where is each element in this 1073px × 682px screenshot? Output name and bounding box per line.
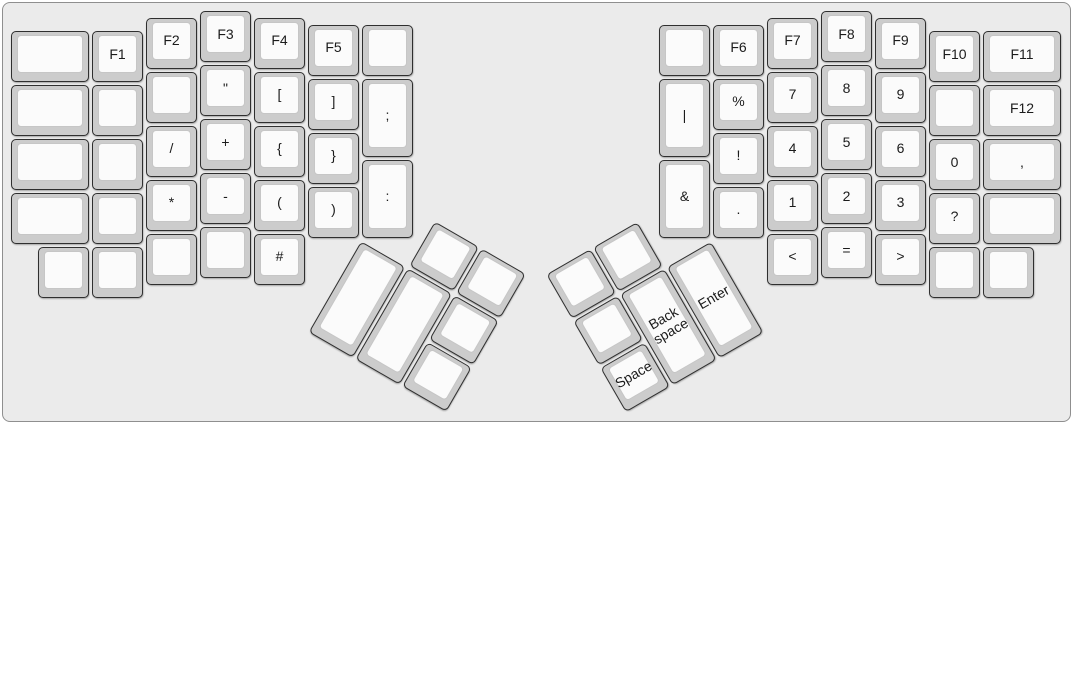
key-label: 9 [897, 87, 905, 102]
key-question[interactable]: ? [929, 193, 980, 244]
key-blank[interactable] [92, 85, 143, 136]
key-exclamation[interactable]: ! [713, 133, 764, 184]
key-1[interactable]: 1 [767, 180, 818, 231]
key-semicolon[interactable]: ; [362, 79, 413, 157]
keycap-top-surface: F7 [773, 22, 812, 60]
keycap-top-surface: 4 [773, 130, 812, 168]
key-f9[interactable]: F9 [875, 18, 926, 69]
key-label: ! [737, 148, 741, 163]
key-label: F3 [217, 27, 233, 42]
key-4[interactable]: 4 [767, 126, 818, 177]
keycap-top-surface: 7 [773, 76, 812, 114]
key-6[interactable]: 6 [875, 126, 926, 177]
key-label: 2 [843, 189, 851, 204]
key-8[interactable]: 8 [821, 65, 872, 116]
keycap-top-surface: [ [260, 76, 299, 114]
keycap-top-surface: 1 [773, 184, 812, 222]
keycap-top-surface: F1 [98, 35, 137, 73]
key-label: 0 [951, 155, 959, 170]
key-blank[interactable] [11, 139, 89, 190]
key-label: F12 [1010, 101, 1034, 116]
keycap-top-surface: ( [260, 184, 299, 222]
key-label: Back space [643, 302, 690, 347]
keycap-top-surface: * [152, 184, 191, 222]
key-left-bracket[interactable]: [ [254, 72, 305, 123]
keycap-top-surface [17, 197, 83, 235]
key-label: < [788, 249, 796, 264]
key-label: / [170, 141, 174, 156]
key-left-brace[interactable]: { [254, 126, 305, 177]
key-0[interactable]: 0 [929, 139, 980, 190]
key-label: 1 [789, 195, 797, 210]
key-hash[interactable]: # [254, 234, 305, 285]
key-label: F1 [109, 47, 125, 62]
key-left-paren[interactable]: ( [254, 180, 305, 231]
keycap-top-surface: 2 [827, 177, 866, 215]
key-label: 6 [897, 141, 905, 156]
key-blank[interactable] [146, 234, 197, 285]
key-label: F4 [271, 33, 287, 48]
key-label: F9 [892, 33, 908, 48]
keycap-top-surface: & [665, 164, 704, 229]
keycap-top-surface: F3 [206, 15, 245, 53]
key-label: , [1020, 155, 1024, 170]
key-label: F11 [1010, 47, 1033, 62]
key-label: 4 [789, 141, 797, 156]
keycap-top-surface [152, 238, 191, 276]
key-right-bracket[interactable]: ] [308, 79, 359, 130]
key-label: F7 [784, 33, 800, 48]
key-label: F2 [163, 33, 179, 48]
key-blank[interactable] [983, 247, 1034, 298]
key-label: F8 [838, 27, 854, 42]
keycap-top-surface: 0 [935, 143, 974, 181]
keycap-top-surface: % [719, 83, 758, 121]
keycap-top-surface: F6 [719, 29, 758, 67]
key-label: 5 [843, 135, 851, 150]
key-7[interactable]: 7 [767, 72, 818, 123]
keycap-top-surface: . [719, 191, 758, 229]
key-blank[interactable] [659, 25, 710, 76]
key-label: Space [613, 358, 655, 391]
key-label: 7 [789, 87, 797, 102]
key-blank[interactable] [983, 193, 1061, 244]
key-label: # [276, 249, 284, 264]
keycap-top-surface [17, 143, 83, 181]
key-label: | [683, 108, 687, 123]
key-blank[interactable] [200, 227, 251, 278]
keycap-top-surface [665, 29, 704, 67]
key-label: " [223, 81, 228, 96]
key-period[interactable]: . [713, 187, 764, 238]
key-slash[interactable]: / [146, 126, 197, 177]
keycap-top-surface [98, 197, 137, 235]
keycap-top-surface: < [773, 238, 812, 276]
keycap-top-surface: # [260, 238, 299, 276]
key-label: F10 [942, 47, 966, 62]
keycap-top-surface: { [260, 130, 299, 168]
key-label: Enter [695, 283, 731, 313]
key-f8[interactable]: F8 [821, 11, 872, 62]
key-pipe[interactable]: | [659, 79, 710, 157]
key-greater-than[interactable]: > [875, 234, 926, 285]
key-f12[interactable]: F12 [983, 85, 1061, 136]
keycap-top-surface: + [206, 123, 245, 161]
key-blank[interactable] [362, 25, 413, 76]
key-label: * [169, 195, 174, 210]
key-blank[interactable] [929, 247, 980, 298]
key-blank[interactable] [92, 193, 143, 244]
key-double-quote[interactable]: " [200, 65, 251, 116]
key-label: F6 [730, 40, 746, 55]
keycap-top-surface: : [368, 164, 407, 229]
keycap-top-surface: = [827, 231, 866, 269]
keycap-top-surface [368, 29, 407, 67]
keycap-top-surface: > [881, 238, 920, 276]
key-label: > [896, 249, 904, 264]
key-f10[interactable]: F10 [929, 31, 980, 82]
key-comma[interactable]: , [983, 139, 1061, 190]
keycap-top-surface [17, 89, 83, 127]
keycap-top-surface: } [314, 137, 353, 175]
keycap-top-surface: / [152, 130, 191, 168]
keycap-top-surface: F11 [989, 35, 1055, 73]
key-label: { [277, 141, 282, 156]
keycap-top-surface: F8 [827, 15, 866, 53]
keycap-top-surface: F9 [881, 22, 920, 60]
key-blank[interactable] [929, 85, 980, 136]
keycap-top-surface: 3 [881, 184, 920, 222]
key-blank[interactable] [146, 72, 197, 123]
key-blank[interactable] [38, 247, 89, 298]
keycap-top-surface: 9 [881, 76, 920, 114]
key-less-than[interactable]: < [767, 234, 818, 285]
key-blank[interactable] [11, 31, 89, 82]
key-equals[interactable]: = [821, 227, 872, 278]
key-right-brace[interactable]: } [308, 133, 359, 184]
keycap-top-surface: F2 [152, 22, 191, 60]
key-f5[interactable]: F5 [308, 25, 359, 76]
key-blank[interactable] [92, 139, 143, 190]
key-f6[interactable]: F6 [713, 25, 764, 76]
key-label: + [221, 135, 229, 150]
keycap-top-surface: , [989, 143, 1055, 181]
keycap-top-surface [935, 251, 974, 289]
keycap-top-surface [206, 231, 245, 269]
key-percent[interactable]: % [713, 79, 764, 130]
key-f2[interactable]: F2 [146, 18, 197, 69]
key-label: ( [277, 195, 282, 210]
keycap-top-surface: - [206, 177, 245, 215]
key-label: [ [278, 87, 282, 102]
key-f11[interactable]: F11 [983, 31, 1061, 82]
key-label: - [223, 189, 228, 204]
keycap-top-surface: ! [719, 137, 758, 175]
keycap-top-surface [98, 251, 137, 289]
key-f1[interactable]: F1 [92, 31, 143, 82]
key-plus[interactable]: + [200, 119, 251, 170]
key-9[interactable]: 9 [875, 72, 926, 123]
key-label: ? [951, 209, 959, 224]
key-f4[interactable]: F4 [254, 18, 305, 69]
keycap-top-surface [98, 143, 137, 181]
keycap-top-surface: F10 [935, 35, 974, 73]
key-5[interactable]: 5 [821, 119, 872, 170]
keycap-top-surface: ) [314, 191, 353, 229]
key-label: : [386, 189, 390, 204]
key-label: F5 [325, 40, 341, 55]
keycap-top-surface: 8 [827, 69, 866, 107]
keycap-top-surface: ; [368, 83, 407, 148]
key-label: ) [331, 202, 336, 217]
keycap-top-surface: F5 [314, 29, 353, 67]
key-ampersand[interactable]: & [659, 160, 710, 238]
key-label: ] [332, 94, 336, 109]
keycap-top-surface: F4 [260, 22, 299, 60]
key-2[interactable]: 2 [821, 173, 872, 224]
key-blank[interactable] [11, 193, 89, 244]
key-label: ; [386, 108, 390, 123]
key-right-paren[interactable]: ) [308, 187, 359, 238]
keycap-top-surface [152, 76, 191, 114]
keycap-top-surface [44, 251, 83, 289]
key-label: % [732, 94, 744, 109]
key-f7[interactable]: F7 [767, 18, 818, 69]
keyboard-layout-page: { "board": { "unit_px": 54, "origin_px":… [0, 0, 1073, 424]
keycap-top-surface: ? [935, 197, 974, 235]
keycap-top-surface: ] [314, 83, 353, 121]
keycap-top-surface: " [206, 69, 245, 107]
key-asterisk[interactable]: * [146, 180, 197, 231]
key-label: 3 [897, 195, 905, 210]
key-label: & [680, 189, 689, 204]
key-minus[interactable]: - [200, 173, 251, 224]
keycap-top-surface [935, 89, 974, 127]
keycap-top-surface [989, 251, 1028, 289]
keycap-top-surface: | [665, 83, 704, 148]
key-label: = [842, 243, 850, 258]
key-blank[interactable] [92, 247, 143, 298]
key-label: . [737, 202, 741, 217]
key-f3[interactable]: F3 [200, 11, 251, 62]
keycap-top-surface: 6 [881, 130, 920, 168]
key-blank[interactable] [11, 85, 89, 136]
key-label: } [331, 148, 336, 163]
key-3[interactable]: 3 [875, 180, 926, 231]
keycap-top-surface [17, 35, 83, 73]
key-colon[interactable]: : [362, 160, 413, 238]
keycap-top-surface: 5 [827, 123, 866, 161]
keycap-top-surface: F12 [989, 89, 1055, 127]
keycap-top-surface [98, 89, 137, 127]
keycap-top-surface [989, 197, 1055, 235]
key-label: 8 [843, 81, 851, 96]
